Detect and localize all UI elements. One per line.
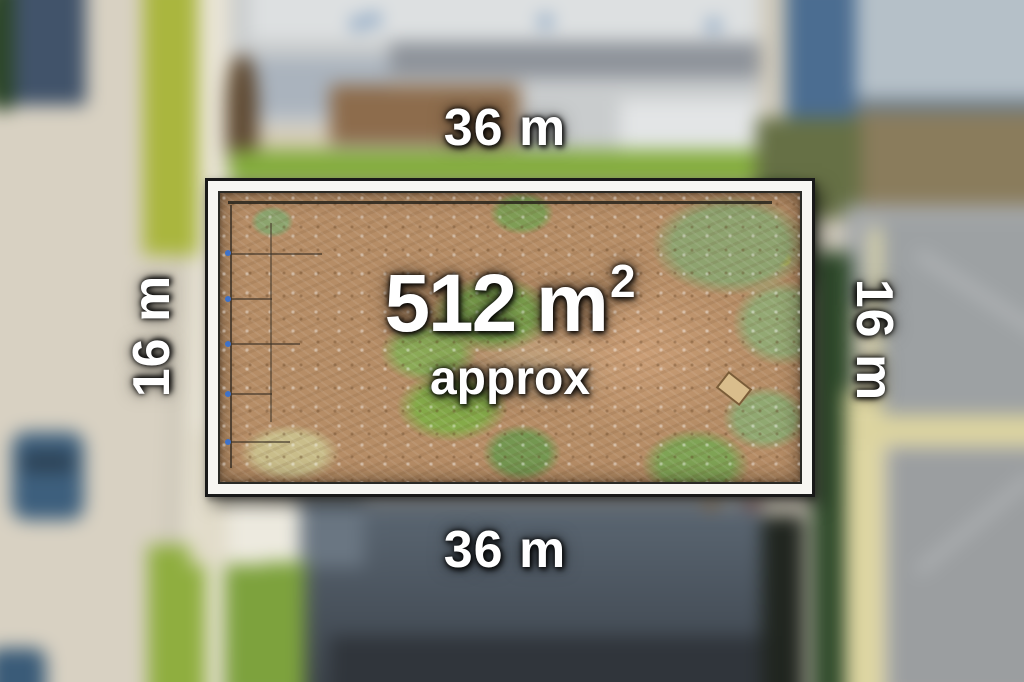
parked-car xyxy=(12,432,84,520)
grass-strip xyxy=(143,0,198,255)
lot-width-label-top: 36 m xyxy=(444,102,567,154)
lot-highlight-frame: 512 m2 approx xyxy=(205,178,815,497)
house-roof xyxy=(14,0,86,105)
lot-area-label: 512 m2 approx xyxy=(220,263,800,403)
house-roof xyxy=(856,0,1024,110)
lot-photo: 512 m2 approx xyxy=(218,191,802,484)
area-value-line: 512 m2 xyxy=(220,263,800,345)
area-qualifier: approx xyxy=(220,355,800,403)
yard-scrub xyxy=(855,112,1024,207)
survey-peg xyxy=(225,250,231,256)
lot-depth-label-right: 16 m xyxy=(848,279,900,402)
fence-rail xyxy=(230,441,290,443)
house-roof xyxy=(294,497,364,567)
car-windshield xyxy=(22,452,74,472)
parked-car xyxy=(0,648,46,682)
house-roof xyxy=(390,42,760,78)
lot-width-label-bottom: 36 m xyxy=(444,524,567,576)
grass-strip xyxy=(148,545,206,682)
roof-detail xyxy=(706,498,716,508)
yard-border xyxy=(845,415,1024,445)
roof-vent xyxy=(708,20,719,31)
aerial-lot-image: 512 m2 approx 36 m 36 m 16 m 16 m xyxy=(0,0,1024,682)
roof-gutter xyxy=(356,497,760,504)
house-roof xyxy=(250,0,760,40)
area-exponent: 2 xyxy=(610,255,636,307)
fence-line-top xyxy=(228,201,772,204)
house-roof xyxy=(330,636,762,682)
roof-vent xyxy=(352,18,363,29)
roof-detail xyxy=(748,498,758,508)
survey-peg xyxy=(225,439,231,445)
roof-vent xyxy=(540,16,551,27)
lot-depth-label-left: 16 m xyxy=(126,275,178,398)
fence-rail xyxy=(230,253,322,255)
house-roof xyxy=(888,448,1024,682)
roof-detail xyxy=(726,497,736,507)
house-wall xyxy=(786,0,856,125)
driveway xyxy=(228,500,300,562)
area-value: 512 m xyxy=(384,258,607,349)
grass-strip xyxy=(225,560,305,682)
roof-vent xyxy=(368,14,379,25)
